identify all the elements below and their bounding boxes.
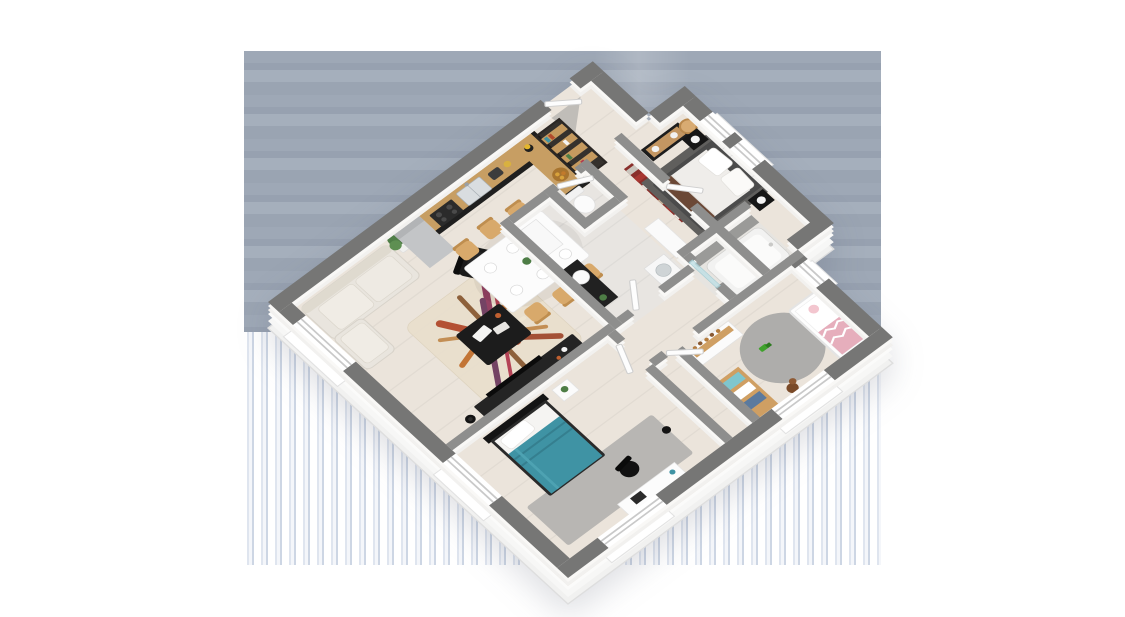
kids-door-leaf xyxy=(666,349,703,356)
screenshot-canvas: 3D isometric floor plan of a single-stor… xyxy=(0,0,1125,617)
floor-plan-3d: 3D isometric floor plan of a single-stor… xyxy=(0,0,1125,617)
